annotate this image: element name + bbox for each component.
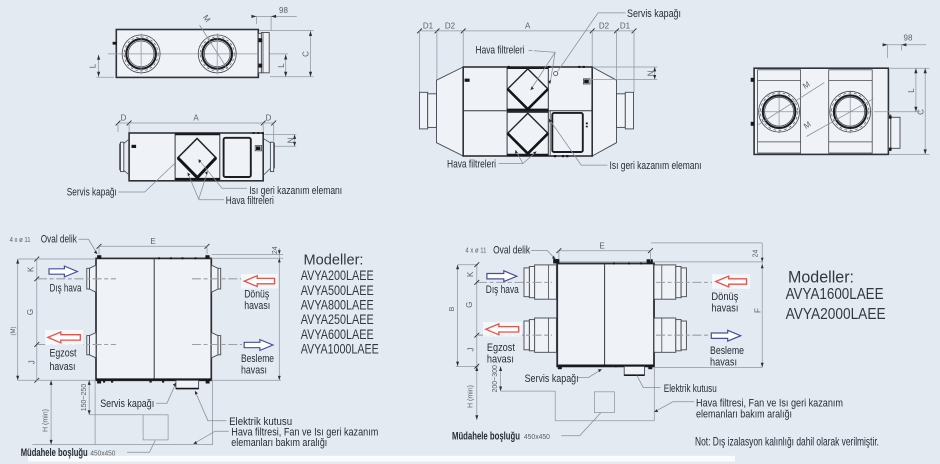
svg-text:L: L	[277, 63, 286, 68]
svg-text:B: B	[449, 306, 456, 311]
svg-text:havası: havası	[50, 361, 76, 373]
svg-text:AVYA800LAEE: AVYA800LAEE	[301, 297, 374, 313]
svg-text:Dış hava: Dış hava	[50, 282, 83, 294]
svg-text:Egzost: Egzost	[487, 342, 515, 354]
svg-text:AVYA2000LAEE: AVYA2000LAEE	[786, 306, 886, 323]
svg-text:Not: Dış izalasyon kalınlığı d: Not: Dış izalasyon kalınlığı dahil olara…	[695, 435, 879, 449]
svg-text:Müdahele boşluğu: Müdahele boşluğu	[21, 447, 88, 459]
svg-text:AVYA1000LAEE: AVYA1000LAEE	[301, 341, 379, 357]
svg-text:Isı geri kazanım elemanı: Isı geri kazanım elemanı	[610, 160, 702, 172]
svg-text:D1: D1	[423, 21, 434, 30]
svg-text:havası: havası	[244, 300, 270, 312]
svg-text:J: J	[467, 348, 476, 352]
svg-text:4 x ø 11: 4 x ø 11	[465, 248, 486, 255]
svg-text:D2: D2	[599, 21, 610, 30]
svg-text:4 x ø 11: 4 x ø 11	[10, 237, 31, 244]
svg-text:150~250: 150~250	[81, 384, 88, 412]
svg-text:havası: havası	[487, 354, 514, 366]
svg-text:Besleme: Besleme	[710, 345, 744, 357]
svg-text:H (min): H (min)	[42, 409, 49, 432]
svg-text:Müdahele boşluğu: Müdahele boşluğu	[452, 431, 520, 443]
svg-text:98: 98	[279, 6, 288, 15]
svg-text:Servis kapağı: Servis kapağı	[67, 187, 117, 199]
svg-text:Modeller:: Modeller:	[304, 252, 364, 269]
svg-text:havası: havası	[710, 357, 737, 369]
svg-text:Modeller:: Modeller:	[788, 268, 854, 287]
svg-text:G: G	[465, 302, 474, 308]
svg-text:Besleme: Besleme	[241, 353, 274, 365]
svg-text:Oval delik: Oval delik	[493, 245, 530, 257]
svg-text:D: D	[266, 114, 272, 123]
svg-text:Servis kapağı: Servis kapağı	[627, 8, 681, 20]
svg-text:C: C	[301, 51, 310, 57]
svg-text:AVYA250LAEE: AVYA250LAEE	[301, 311, 374, 327]
svg-text:J: J	[28, 360, 37, 364]
svg-text:H (min): H (min)	[468, 385, 475, 408]
svg-text:L: L	[907, 88, 916, 93]
svg-text:havası: havası	[241, 365, 267, 377]
svg-text:N: N	[286, 137, 295, 143]
svg-text:AVYA200LAEE: AVYA200LAEE	[301, 267, 374, 283]
svg-text:N: N	[647, 70, 656, 76]
svg-text:Dönüş: Dönüş	[711, 291, 738, 303]
svg-text:450x450: 450x450	[524, 434, 550, 441]
svg-text:L: L	[89, 63, 98, 68]
svg-text:AVYA500LAEE: AVYA500LAEE	[301, 282, 374, 298]
svg-text:200~300: 200~300	[492, 365, 499, 393]
svg-text:elemanları bakım aralığı: elemanları bakım aralığı	[696, 409, 792, 421]
svg-text:24: 24	[272, 246, 279, 254]
svg-text:K: K	[27, 266, 36, 272]
svg-text:K: K	[466, 271, 475, 277]
svg-text:98: 98	[904, 34, 913, 43]
svg-text:Dönüş: Dönüş	[244, 289, 269, 301]
svg-text:A: A	[193, 114, 199, 123]
svg-text:Servis kapağı: Servis kapağı	[525, 373, 579, 385]
svg-text:elemanları bakım aralığı: elemanları bakım aralığı	[231, 437, 327, 449]
svg-text:E: E	[599, 241, 604, 250]
svg-text:Isı geri kazanım elemanı: Isı geri kazanım elemanı	[249, 185, 342, 197]
svg-text:Dış hava: Dış hava	[486, 284, 520, 296]
svg-text:Hava filtreleri: Hava filtreleri	[476, 45, 525, 57]
svg-text:Egzost: Egzost	[50, 347, 77, 359]
svg-text:(M): (M)	[11, 327, 17, 336]
svg-text:F: F	[753, 308, 762, 313]
svg-text:Hava filtreleri: Hava filtreleri	[226, 195, 274, 207]
svg-text:Elektrik kutusu: Elektrik kutusu	[664, 383, 717, 395]
svg-text:Hava filtreleri: Hava filtreleri	[447, 158, 496, 170]
svg-text:G: G	[26, 309, 35, 315]
svg-text:24: 24	[752, 250, 759, 258]
svg-text:AVYA600LAEE: AVYA600LAEE	[301, 326, 374, 342]
svg-text:AVYA1600LAEE: AVYA1600LAEE	[786, 286, 884, 303]
svg-text:C: C	[916, 109, 925, 115]
svg-text:D2: D2	[445, 21, 456, 30]
svg-text:Oval delik: Oval delik	[41, 234, 77, 246]
svg-text:D: D	[121, 114, 127, 123]
svg-text:A: A	[525, 21, 531, 30]
svg-text:D1: D1	[620, 21, 631, 30]
svg-text:havası: havası	[711, 303, 738, 315]
svg-text:Servis kapağı: Servis kapağı	[100, 398, 154, 410]
svg-text:450x450: 450x450	[90, 451, 115, 458]
svg-text:E: E	[150, 237, 155, 246]
